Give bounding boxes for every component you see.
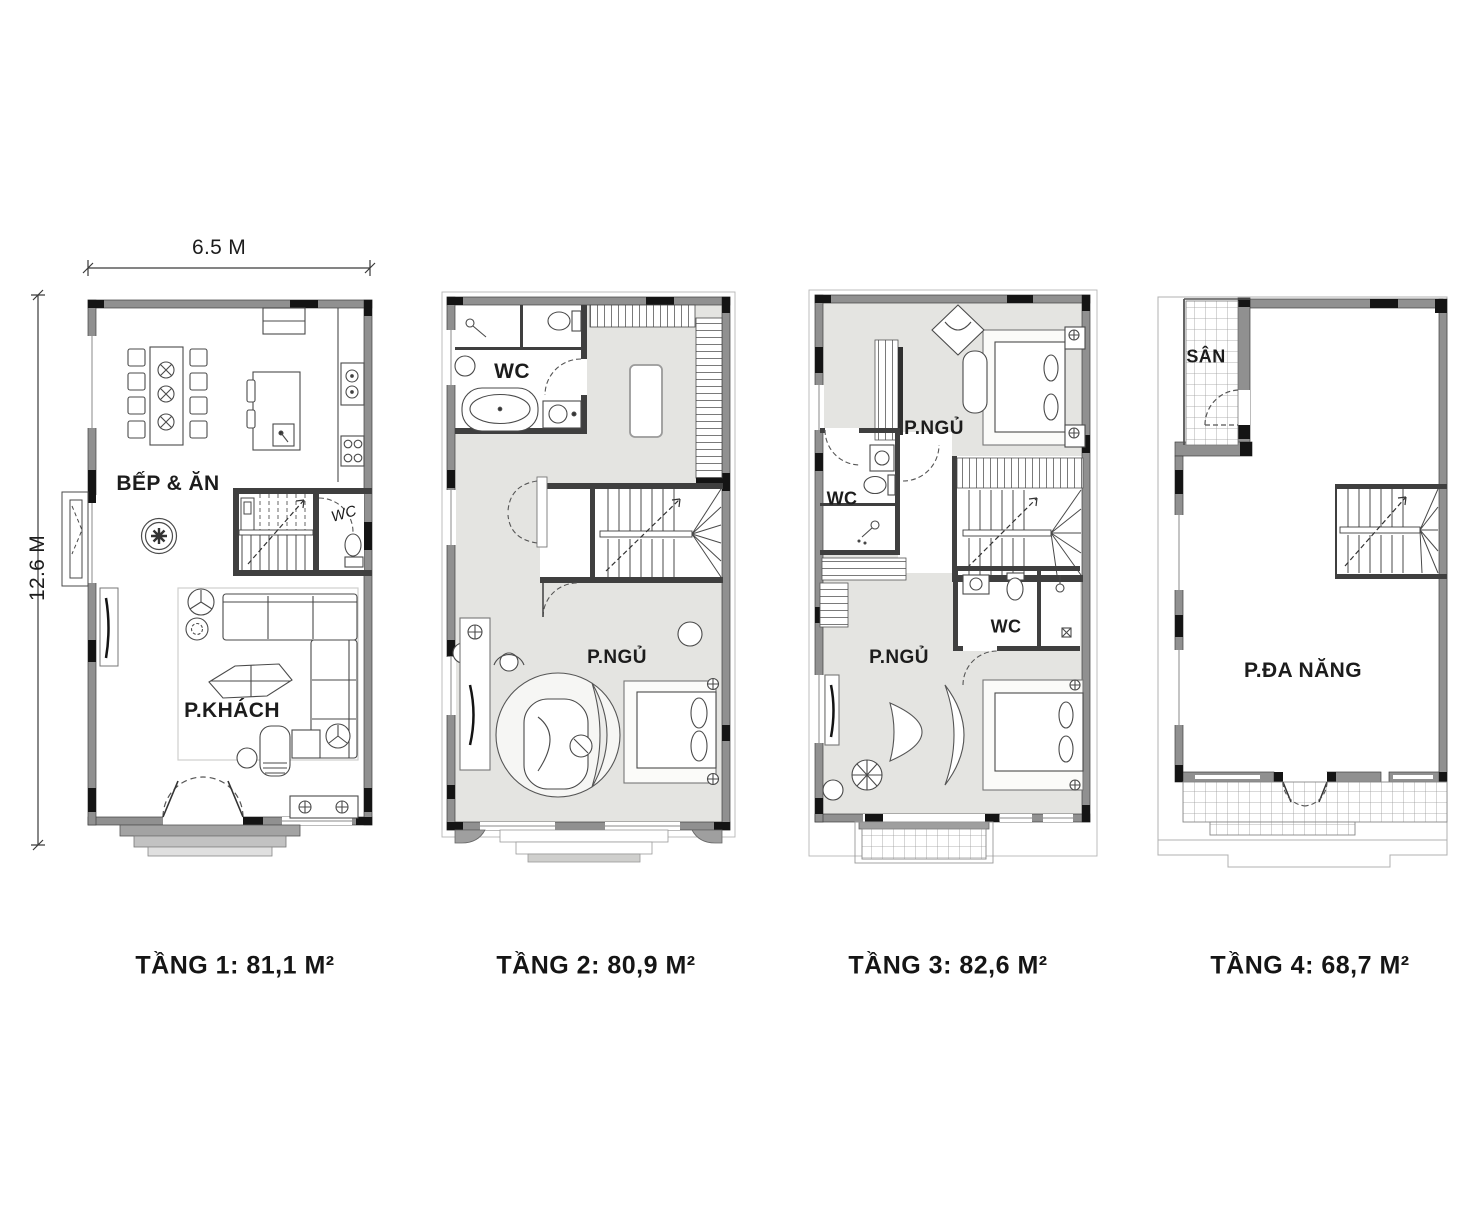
bay-window — [62, 492, 88, 586]
floor-1-plan — [20, 230, 430, 880]
balcony — [855, 822, 993, 863]
room-label-bedroom-floor2: P.NGỦ — [587, 647, 647, 669]
dining-set — [128, 347, 207, 445]
room-label-bedroom-top-floor3: P.NGỦ — [904, 418, 964, 440]
floor-4-plan — [1150, 285, 1472, 870]
staircase — [1335, 484, 1447, 579]
room-label-bedroom-bottom-floor3: P.NGỦ — [869, 647, 929, 669]
room-label-wc-floor2: WC — [494, 360, 530, 384]
room-label-living: P.KHÁCH — [184, 699, 280, 723]
entry-porch — [120, 825, 300, 856]
entry-bench — [290, 796, 358, 818]
window-panel — [100, 588, 118, 666]
caption-floor-2: TẦNG 2: 80,9 M² — [496, 952, 695, 981]
balcony-porch — [455, 830, 722, 862]
entrance-door — [163, 777, 243, 817]
room-label-wc-right-floor3: WC — [991, 617, 1022, 638]
room-label-multipurpose: P.ĐA NĂNG — [1244, 659, 1362, 683]
ceiling-fan-icon — [142, 519, 177, 554]
room-label-kitchen-dining: BẾP & ĂN — [116, 472, 219, 496]
floor-2-plan — [440, 285, 740, 870]
kitchen-island — [247, 372, 300, 450]
caption-floor-1: TẦNG 1: 81,1 M² — [135, 952, 334, 981]
dimension-height-label: 12.6 M — [26, 535, 50, 601]
caption-floor-4: TẦNG 4: 68,7 M² — [1210, 952, 1409, 981]
void-opening — [630, 365, 662, 437]
dimension-width-label: 6.5 M — [192, 236, 246, 260]
room-label-terrace: SÂN — [1186, 347, 1225, 368]
floor-3-plan — [805, 285, 1105, 875]
caption-floor-3: TẦNG 3: 82,6 M² — [848, 952, 1047, 981]
room-label-wc-left-floor3: WC — [827, 489, 858, 510]
balcony — [1183, 782, 1447, 835]
floor-plan-sheet: 6.5 M 12.6 M BẾP & ĂN WC P.KHÁCH WC P.NG… — [0, 0, 1472, 1222]
living-room-furniture — [178, 588, 358, 776]
